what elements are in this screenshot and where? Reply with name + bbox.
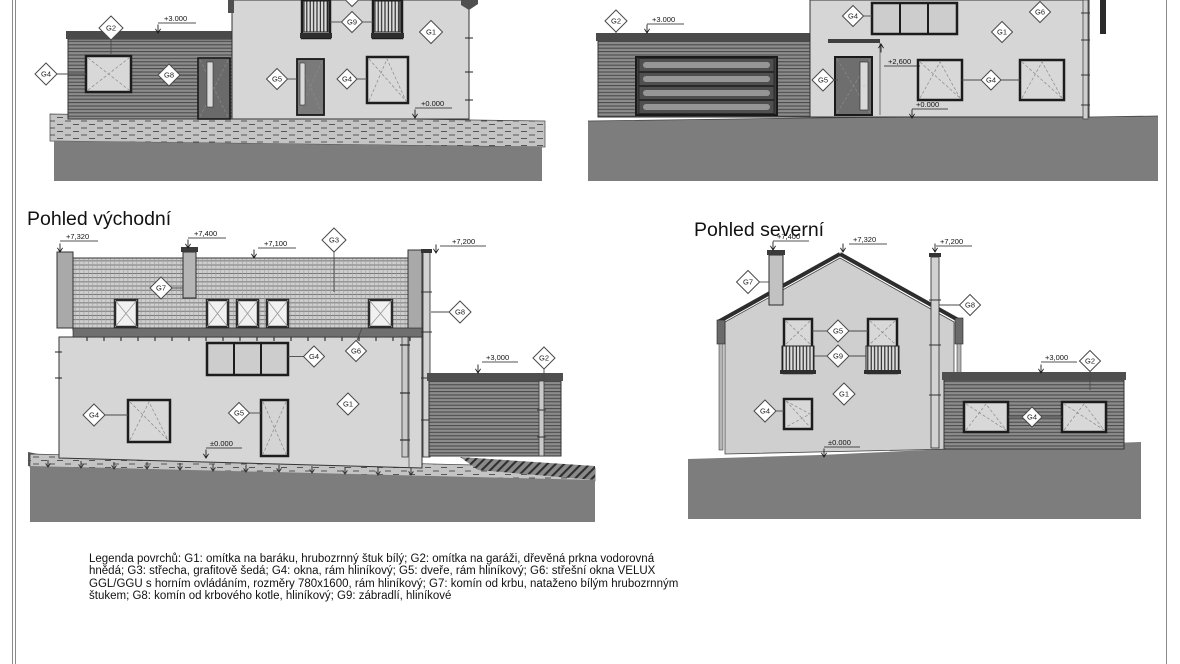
garage-roof-band bbox=[427, 373, 563, 381]
ribbon-window bbox=[207, 343, 288, 375]
downspout-right bbox=[957, 344, 961, 374]
house-window bbox=[367, 57, 408, 103]
garage-window bbox=[86, 56, 131, 92]
garage-roof-band bbox=[66, 31, 237, 39]
ground-paving bbox=[50, 114, 545, 181]
ribbon-window bbox=[872, 3, 957, 34]
elevation-title-north: Pohled severní bbox=[694, 219, 825, 241]
roof-fragment-left bbox=[228, 0, 234, 13]
svg-text:G3: G3 bbox=[329, 236, 339, 245]
svg-text:G5: G5 bbox=[272, 75, 282, 84]
masonry-chimney bbox=[767, 250, 785, 305]
verge-band-left bbox=[57, 252, 73, 328]
svg-text:G7: G7 bbox=[156, 284, 166, 293]
svg-text:G8: G8 bbox=[164, 71, 174, 80]
svg-text:G2: G2 bbox=[1085, 357, 1095, 366]
svg-text:G1: G1 bbox=[997, 28, 1007, 37]
garage-downspout bbox=[539, 381, 544, 456]
svg-text:+2,600: +2,600 bbox=[888, 57, 911, 66]
entry-canopy bbox=[828, 39, 880, 43]
level-eaves: +7,100 bbox=[251, 239, 296, 258]
svg-text:±0.000: ±0.000 bbox=[210, 439, 233, 448]
small-window bbox=[784, 399, 812, 429]
garage-wing bbox=[596, 33, 812, 117]
marker-g7: G7 bbox=[737, 271, 770, 294]
svg-text:+7,200: +7,200 bbox=[940, 237, 963, 246]
level-pipe: +7,200 bbox=[433, 237, 486, 253]
svg-text:G8: G8 bbox=[965, 301, 975, 310]
level-ridge: +7,320 bbox=[57, 232, 98, 252]
railing bbox=[782, 346, 814, 371]
eaves-band bbox=[73, 328, 422, 337]
elevation-top-right: G2 G4 G6 G1 G5 G4 +3.000 bbox=[590, 0, 1170, 210]
svg-text:G6: G6 bbox=[1035, 8, 1045, 17]
entry-door bbox=[297, 59, 324, 115]
garage-window-left bbox=[964, 402, 1008, 432]
railing bbox=[866, 346, 899, 371]
railing bbox=[304, 1, 328, 32]
svg-text:+3.000: +3.000 bbox=[164, 14, 187, 23]
elevation-east: Pohled východní bbox=[0, 200, 620, 530]
eave-corner-right bbox=[955, 318, 963, 344]
skylight bbox=[207, 300, 228, 327]
downspout-left bbox=[719, 344, 723, 450]
entry-door bbox=[835, 57, 872, 115]
svg-text:G4: G4 bbox=[760, 407, 770, 416]
garage-window-right bbox=[1062, 402, 1106, 432]
svg-text:±0.000: ±0.000 bbox=[828, 438, 851, 447]
level-ridge: +7,320 bbox=[840, 235, 887, 252]
svg-text:+7,100: +7,100 bbox=[264, 239, 287, 248]
eave-corner-left bbox=[717, 320, 725, 344]
chimney-pipe bbox=[207, 62, 213, 107]
svg-text:G2: G2 bbox=[611, 17, 621, 26]
window-right bbox=[1020, 60, 1064, 100]
level-roof: +3.000 bbox=[644, 15, 684, 33]
french-window-left bbox=[300, 0, 332, 38]
svg-text:G1: G1 bbox=[426, 28, 436, 37]
marker-g8: G8 bbox=[431, 301, 471, 323]
svg-text:G4: G4 bbox=[89, 411, 99, 420]
railing bbox=[375, 1, 400, 32]
surface-legend: Legenda povrchů: G1: omítka na baráku, h… bbox=[89, 553, 714, 603]
svg-text:+0.000: +0.000 bbox=[916, 100, 939, 109]
downspout bbox=[1100, 0, 1106, 34]
verge-band-right bbox=[408, 250, 422, 336]
garage-door bbox=[636, 57, 777, 115]
legend-line: GGL/GGU s horním ovládáním, rozměry 780x… bbox=[89, 578, 714, 590]
svg-text:+3,000: +3,000 bbox=[1045, 353, 1068, 362]
skylight bbox=[369, 300, 392, 327]
legend-line: štukem; G8: komín od krbového kotle, hli… bbox=[89, 590, 714, 602]
svg-text:G5: G5 bbox=[234, 409, 244, 418]
svg-text:G5: G5 bbox=[833, 327, 843, 336]
elevation-top-left: G2 G4 G8 G9 G1 G5 bbox=[0, 0, 590, 210]
masonry-chimney bbox=[181, 247, 198, 298]
garage-wing bbox=[66, 31, 237, 119]
skylight bbox=[267, 300, 288, 327]
drawing-sheet: G2 G4 G8 G9 G1 G5 bbox=[0, 0, 1180, 664]
svg-text:G4: G4 bbox=[309, 352, 319, 361]
svg-text:+7,320: +7,320 bbox=[853, 235, 876, 244]
svg-text:G8: G8 bbox=[455, 308, 465, 317]
window-left bbox=[918, 60, 962, 100]
svg-text:+7,400: +7,400 bbox=[194, 229, 217, 238]
window bbox=[128, 400, 170, 442]
garage-roof-band bbox=[596, 33, 812, 41]
door-handle bbox=[863, 85, 865, 87]
svg-text:+3.000: +3.000 bbox=[652, 15, 675, 24]
level-chimney: +7,400 bbox=[185, 229, 226, 248]
svg-text:+0.000: +0.000 bbox=[421, 99, 444, 108]
elevation-north: Pohled severní bbox=[680, 200, 1160, 530]
svg-text:G4: G4 bbox=[986, 76, 996, 85]
level-garage: +3,000 bbox=[1038, 353, 1077, 373]
svg-text:+7,200: +7,200 bbox=[452, 237, 475, 246]
skylight bbox=[115, 300, 137, 327]
svg-text:G4: G4 bbox=[848, 12, 858, 21]
svg-text:+7,400: +7,400 bbox=[777, 232, 800, 241]
french-window-left bbox=[780, 319, 816, 374]
rafter-ticks bbox=[73, 337, 422, 341]
ground bbox=[588, 116, 1158, 181]
legend-line: Legenda povrchů: G1: omítka na baráku, h… bbox=[89, 553, 714, 565]
elevation-title-east: Pohled východní bbox=[27, 208, 172, 230]
svg-text:G4: G4 bbox=[41, 70, 51, 79]
svg-text:+7,320: +7,320 bbox=[66, 232, 89, 241]
garage-wing bbox=[427, 373, 563, 456]
svg-text:G9: G9 bbox=[347, 18, 357, 27]
level-pipe: +7,200 bbox=[932, 237, 972, 252]
garage-roof-band bbox=[942, 372, 1126, 380]
svg-text:G1: G1 bbox=[839, 390, 849, 399]
level-garage: +3,000 bbox=[475, 353, 518, 373]
skylight bbox=[237, 300, 258, 327]
svg-text:G5: G5 bbox=[818, 76, 828, 85]
door bbox=[261, 400, 288, 456]
garage-side-door bbox=[198, 58, 230, 119]
svg-text:G4: G4 bbox=[342, 75, 352, 84]
level-roof: +3.000 bbox=[155, 14, 196, 33]
svg-text:G4: G4 bbox=[1027, 413, 1037, 422]
svg-text:G2: G2 bbox=[106, 24, 116, 33]
svg-text:G2: G2 bbox=[539, 354, 549, 363]
french-window-right bbox=[371, 0, 404, 38]
svg-text:+3,000: +3,000 bbox=[486, 353, 509, 362]
svg-text:G1: G1 bbox=[343, 400, 353, 409]
svg-text:G7: G7 bbox=[743, 278, 753, 287]
svg-text:G6: G6 bbox=[351, 347, 361, 356]
chimney-pipe bbox=[929, 253, 941, 448]
legend-line: hnědá; G3: střecha, grafitově šedá; G4: … bbox=[89, 565, 714, 577]
french-window-right bbox=[864, 319, 901, 374]
svg-text:G9: G9 bbox=[833, 352, 843, 361]
